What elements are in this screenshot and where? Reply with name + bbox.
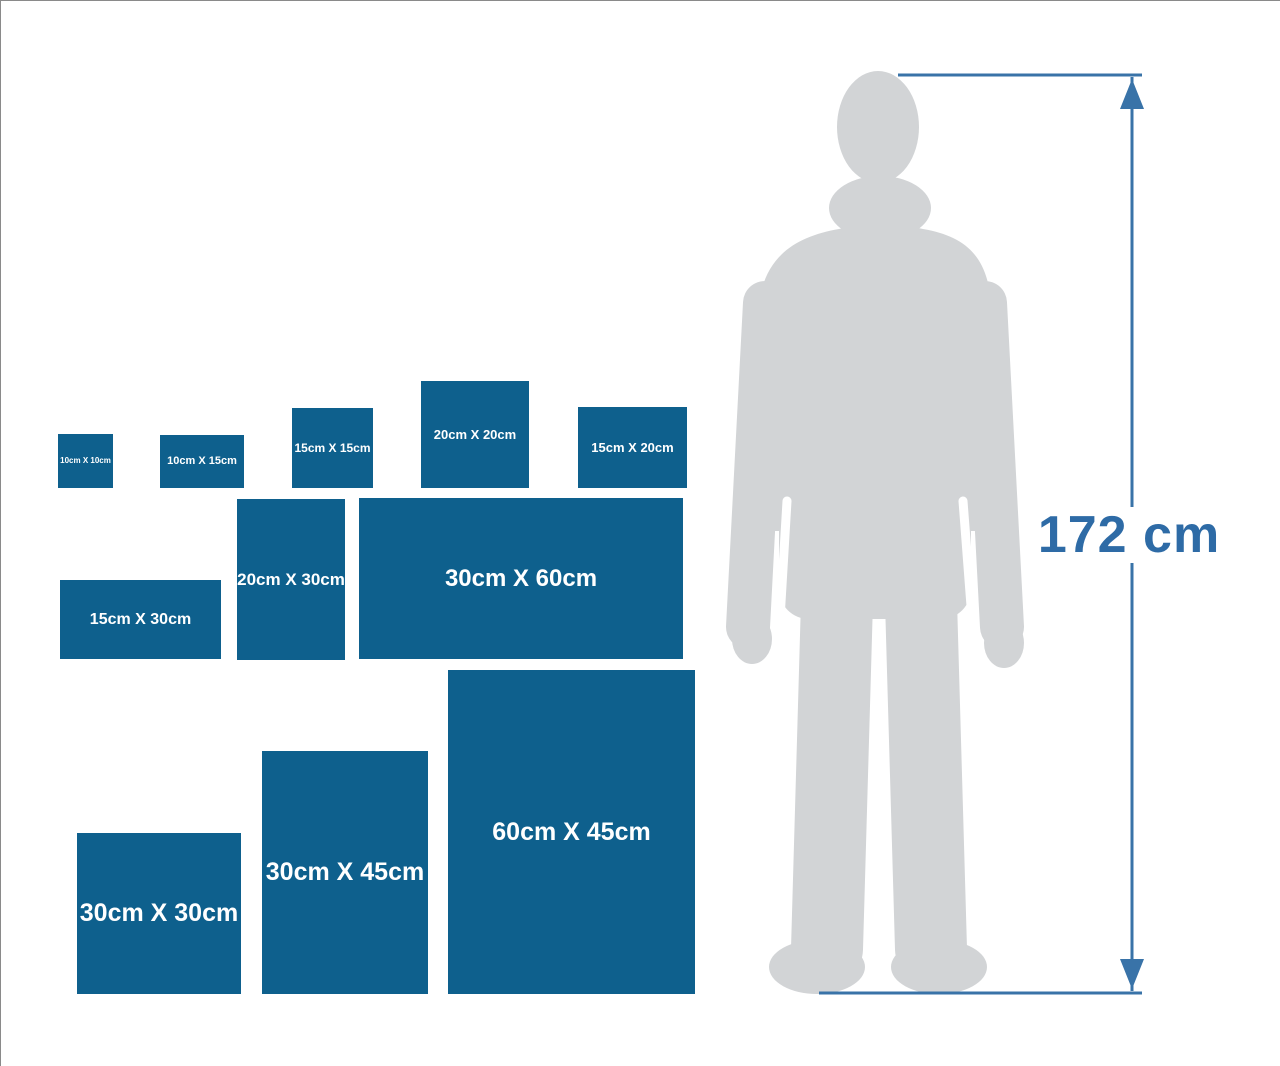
size-panel: 20cm X 30cm — [237, 499, 345, 660]
size-panel-label: 20cm X 30cm — [237, 571, 345, 588]
size-panel-label: 30cm X 45cm — [266, 860, 424, 885]
left-foot-shape — [769, 940, 865, 994]
arrow-down-icon — [1120, 959, 1144, 989]
right-hand-shape — [984, 618, 1024, 668]
size-panel: 30cm X 60cm — [359, 498, 683, 659]
size-panel: 15cm X 20cm — [578, 407, 687, 488]
size-panel-label: 30cm X 60cm — [445, 567, 597, 591]
right-foot-shape — [891, 940, 987, 994]
size-panel: 60cm X 45cm — [448, 670, 695, 994]
size-panel: 30cm X 45cm — [262, 751, 428, 994]
left-hand-shape — [732, 614, 772, 664]
size-panel-label: 10cm X 10cm — [60, 457, 111, 465]
size-panel: 15cm X 30cm — [60, 580, 221, 659]
person-silhouette — [732, 71, 1024, 994]
left-arm-shape — [748, 303, 765, 627]
right-arm-shape — [985, 303, 1002, 627]
height-label: 172 cm — [1028, 507, 1230, 563]
size-panel: 20cm X 20cm — [421, 381, 529, 488]
size-panel: 30cm X 30cm — [77, 833, 241, 994]
size-panel-label: 60cm X 45cm — [492, 820, 650, 845]
size-panel-label: 15cm X 20cm — [591, 441, 673, 454]
size-panel: 10cm X 10cm — [58, 434, 113, 488]
size-panel-label: 15cm X 15cm — [294, 442, 370, 454]
size-panel-label: 10cm X 15cm — [167, 456, 237, 467]
head-shape — [837, 71, 919, 183]
left-leg-shape — [827, 601, 837, 949]
right-leg-shape — [921, 601, 931, 949]
size-panel-label: 15cm X 30cm — [90, 612, 191, 628]
size-panel: 10cm X 15cm — [160, 435, 244, 488]
size-panel-label: 20cm X 20cm — [434, 428, 516, 441]
size-panel: 15cm X 15cm — [292, 408, 373, 488]
size-panel-label: 30cm X 30cm — [80, 901, 238, 926]
size-comparison-diagram: 10cm X 10cm10cm X 15cm15cm X 15cm20cm X … — [0, 0, 1280, 1066]
arrow-up-icon — [1120, 79, 1144, 109]
